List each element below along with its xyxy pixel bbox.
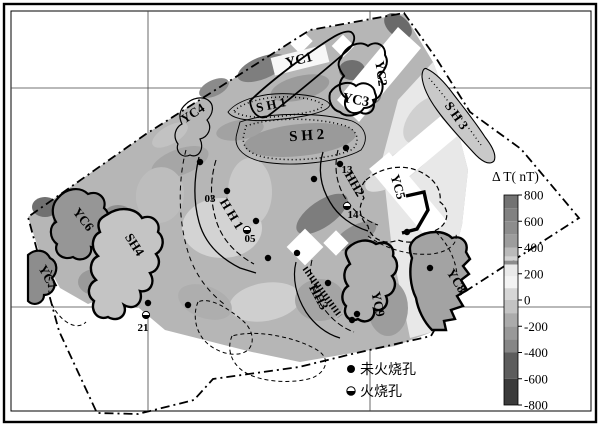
figure-magnetic-anomaly-map: S H 1S H 2S H 3SH4YC1YC2YC3YC4YC5YC6YC7Y…: [0, 0, 600, 426]
unburned-hole-marker: [253, 218, 259, 224]
colorbar-band: [504, 326, 518, 339]
unburned-hole-marker: [404, 229, 410, 235]
unburned-hole-marker: [354, 311, 360, 317]
colorbar-band: [504, 379, 518, 405]
unburned-hole-marker: [325, 280, 331, 286]
colorbar-tick-label: 600: [524, 214, 544, 229]
colorbar-tick-label: 400: [524, 240, 544, 255]
colorbar-band: [504, 234, 518, 247]
colorbar-tick-label: -800: [524, 398, 548, 413]
unburned-hole-marker: [185, 302, 191, 308]
unburned-hole-marker: [294, 250, 300, 256]
unburned-hole-marker: [265, 255, 271, 261]
colorbar-tick-label: -400: [524, 345, 548, 360]
hole-number-13: 13: [342, 164, 354, 176]
colorbar-tick-label: 800: [524, 188, 544, 203]
colorbar-band: [504, 195, 518, 208]
colorbar-band: [504, 313, 518, 326]
colorbar-band: [504, 300, 518, 313]
colorbar-title: Δ T( nT): [492, 169, 539, 184]
unburned-hole-marker: [197, 159, 203, 165]
hole-number-05: 05: [245, 233, 257, 245]
hole-number-14: 14: [348, 209, 360, 221]
colorbar-band: [504, 288, 518, 300]
colorbar-bands: [504, 195, 518, 405]
unburned-hole-marker: [427, 265, 433, 271]
unburned-hole-marker: [224, 188, 230, 194]
colorbar-band: [504, 257, 518, 261]
colorbar-band: [504, 248, 518, 257]
zone-label-sh2: S H 2: [289, 127, 325, 145]
colorbar-tick-label: 200: [524, 266, 544, 281]
unburned-hole-marker: [349, 317, 355, 323]
colorbar-band: [504, 208, 518, 221]
colorbar-tick-label: -200: [524, 319, 548, 334]
colorbar-tick-label: 0: [524, 293, 531, 308]
legend-burned-hole-label: 火烧孔: [360, 384, 402, 400]
hole-number-21: 21: [138, 322, 149, 334]
legend-burned-hole-icon: [347, 387, 355, 395]
colorbar-band: [504, 276, 518, 288]
colorbar-tick-label: -600: [524, 371, 548, 386]
colorbar-band: [504, 265, 518, 277]
hole-number-03: 03: [205, 193, 217, 205]
unburned-hole-marker: [311, 176, 317, 182]
unburned-hole-marker: [145, 300, 151, 306]
colorbar-band: [504, 339, 518, 352]
colorbar-band: [504, 261, 518, 265]
unburned-hole-marker: [343, 145, 349, 151]
map-svg: S H 1S H 2S H 3SH4YC1YC2YC3YC4YC5YC6YC7Y…: [0, 0, 600, 426]
colorbar-band: [504, 353, 518, 379]
legend-unburned-hole-label: 未火烧孔: [360, 362, 416, 378]
legend-unburned-hole-icon: [347, 365, 355, 373]
colorbar-band: [504, 221, 518, 234]
